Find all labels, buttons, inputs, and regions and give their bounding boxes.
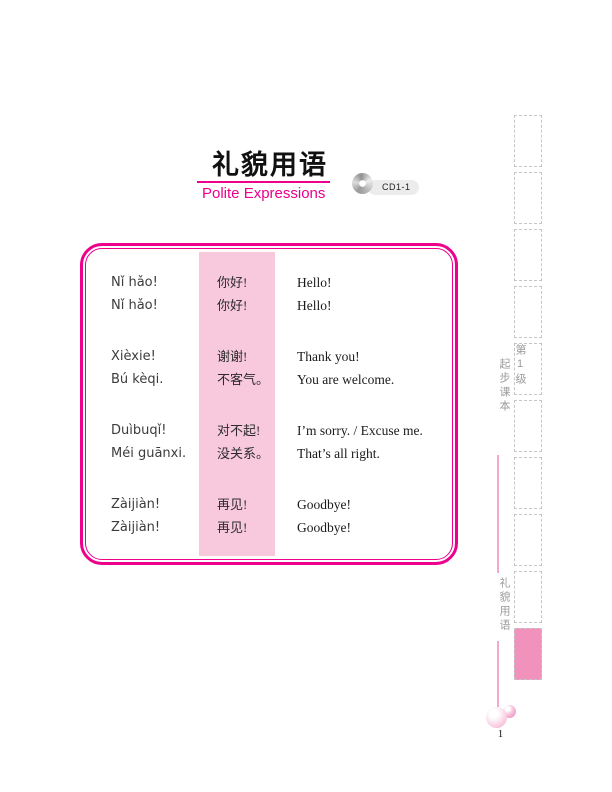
hanzi-text: 谢谢! (217, 345, 247, 368)
level-text: 第1级 (514, 344, 526, 387)
phrase-row: Nǐ hǎo!你好!Hello! (83, 271, 455, 294)
chapter-tab (514, 115, 542, 167)
phrase-box: Nǐ hǎo!你好!Hello!Nǐ hǎo!你好!Hello!Xièxie!谢… (80, 243, 458, 565)
hanzi-text: 再见! (217, 493, 247, 516)
phrase-row: Bú kèqi.不客气。You are welcome. (83, 368, 455, 391)
chapter-tab (514, 457, 542, 509)
bubble-ornament-large (486, 707, 507, 728)
cd-disc-icon (352, 173, 373, 194)
pinyin-text: Zàijiàn! (111, 493, 211, 516)
chapter-tab (514, 571, 542, 623)
chapter-tab (514, 229, 542, 281)
page-number: 1 (493, 728, 508, 740)
chapter-tab (514, 514, 542, 566)
pinyin-text: Nǐ hǎo! (111, 271, 211, 294)
english-text: Thank you! (297, 345, 360, 368)
hanzi-text: 不客气。 (217, 368, 269, 391)
english-text: You are welcome. (297, 368, 394, 391)
english-text: Hello! (297, 271, 332, 294)
pinyin-text: Méi guānxi. (111, 442, 211, 465)
page-title-english: Polite Expressions (202, 185, 362, 202)
phrase-row: Nǐ hǎo!你好!Hello! (83, 294, 455, 317)
hanzi-text: 没关系。 (217, 442, 269, 465)
pinyin-text: Nǐ hǎo! (111, 294, 211, 317)
phrase-group: Xièxie!谢谢!Thank you!Bú kèqi.不客气。You are … (83, 345, 455, 391)
hanzi-text: 你好! (217, 294, 247, 317)
phrase-row: Xièxie!谢谢!Thank you! (83, 345, 455, 368)
textbook-page: 礼貌用语 Polite Expressions CD1-1 Nǐ hǎo!你好!… (0, 0, 612, 792)
phrase-group: Nǐ hǎo!你好!Hello!Nǐ hǎo!你好!Hello! (83, 271, 455, 317)
pinyin-text: Xièxie! (111, 345, 211, 368)
chapter-tab (514, 286, 542, 338)
book-text: 起步课本 (498, 358, 510, 414)
english-text: That’s all right. (297, 442, 380, 465)
chapter-tab-active (514, 628, 542, 680)
pinyin-text: Duìbuqǐ! (111, 419, 211, 442)
phrase-group: Duìbuqǐ!对不起!I’m sorry. / Excuse me.Méi g… (83, 419, 455, 465)
english-text: Goodbye! (297, 493, 351, 516)
phrase-rows: Nǐ hǎo!你好!Hello!Nǐ hǎo!你好!Hello!Xièxie!谢… (83, 271, 455, 567)
phrase-group: Zàijiàn!再见!Goodbye!Zàijiàn!再见!Goodbye! (83, 493, 455, 539)
english-text: I’m sorry. / Excuse me. (297, 419, 423, 442)
pinyin-text: Bú kèqi. (111, 368, 211, 391)
side-rule-upper (497, 455, 499, 573)
hanzi-text: 对不起! (217, 419, 260, 442)
english-text: Goodbye! (297, 516, 351, 539)
side-rule-lower (497, 641, 499, 707)
pinyin-text: Zàijiàn! (111, 516, 211, 539)
page-title-chinese: 礼貌用语 (212, 150, 352, 180)
phrase-row: Duìbuqǐ!对不起!I’m sorry. / Excuse me. (83, 419, 455, 442)
hanzi-text: 你好! (217, 271, 247, 294)
english-text: Hello! (297, 294, 332, 317)
phrase-row: Méi guānxi.没关系。That’s all right. (83, 442, 455, 465)
title-underline (197, 181, 330, 183)
sidebar-level-label: 第1级 起步课本 (496, 344, 528, 414)
chapter-tab (514, 172, 542, 224)
phrase-row: Zàijiàn!再见!Goodbye! (83, 493, 455, 516)
audio-track-indicator: CD1-1 (352, 173, 432, 197)
phrase-row: Zàijiàn!再见!Goodbye! (83, 516, 455, 539)
sidebar-chapter-label: 礼貌用语 (496, 577, 512, 633)
cd-track-label: CD1-1 (368, 180, 419, 195)
hanzi-text: 再见! (217, 516, 247, 539)
